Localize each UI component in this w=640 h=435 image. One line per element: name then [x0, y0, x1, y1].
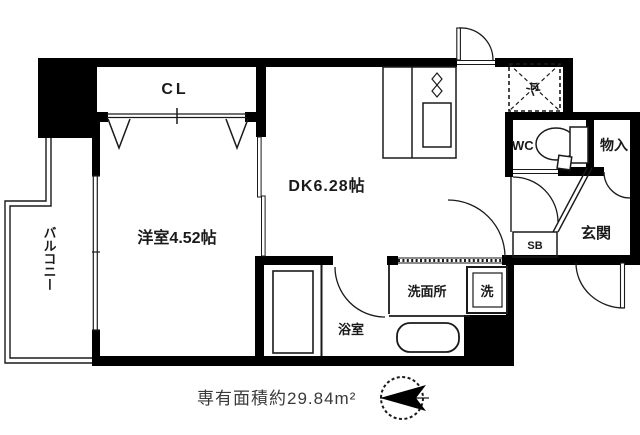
genkan-step — [553, 168, 592, 232]
service-door-swing — [459, 28, 493, 60]
service-door-leaf — [457, 28, 461, 60]
pillar — [38, 58, 97, 138]
kitchen-sink — [423, 103, 451, 147]
refrigerator-label: 冷 — [524, 78, 544, 98]
toilet-control — [557, 155, 572, 170]
washroom-door — [398, 200, 505, 263]
hallway-door — [511, 177, 558, 232]
closet-door-mark-right — [226, 119, 248, 148]
closet-door-mark-left — [108, 119, 130, 148]
genkan-label: 玄関 — [581, 224, 611, 242]
floor-plan-drawing: バルコニー — [0, 0, 640, 435]
toilet — [536, 127, 588, 170]
closet-label: CL — [161, 81, 188, 98]
window — [92, 176, 100, 330]
washroom-door-swing — [448, 200, 505, 257]
front-door-leaf — [621, 263, 625, 308]
walls — [38, 58, 640, 366]
closet: CL — [107, 81, 248, 148]
western-room: 洋室4.52帖 — [92, 137, 265, 330]
area-text: 専有面積約29.84m² — [197, 389, 356, 408]
compass — [380, 377, 429, 419]
balcony-label: バルコニー — [42, 226, 57, 291]
stove-burners — [432, 73, 442, 97]
bathtub — [397, 323, 459, 352]
storage-label: 物入 — [600, 137, 628, 153]
bathroom-label: 浴室 — [338, 322, 364, 337]
toilet-tank — [570, 127, 588, 163]
bathroom-door-swing — [335, 267, 385, 317]
washer-label: 洗 — [480, 284, 493, 299]
footer: 専有面積約29.84m² — [197, 377, 429, 419]
service-door — [457, 28, 495, 65]
wc-door — [513, 170, 558, 174]
shoe-box-label: SB — [527, 240, 542, 252]
wc-storage-hall: WC 物入 SB — [512, 127, 630, 257]
western-room-label: 洋室4.52帖 — [137, 228, 216, 247]
wc-label: WC — [512, 138, 534, 153]
sliding-door — [258, 137, 266, 256]
front-door-swing — [576, 263, 624, 308]
genkan: 玄関 — [576, 224, 625, 308]
floor-plan-page: バルコニー — [0, 0, 640, 435]
storage-door-swing — [604, 172, 630, 198]
hallway-door-swing — [513, 177, 558, 222]
washroom-label: 洗面所 — [407, 284, 446, 299]
kitchen-counter — [383, 67, 456, 158]
left-compartment-fixture — [273, 271, 313, 353]
dk-label: DK6.28帖 — [288, 176, 365, 195]
